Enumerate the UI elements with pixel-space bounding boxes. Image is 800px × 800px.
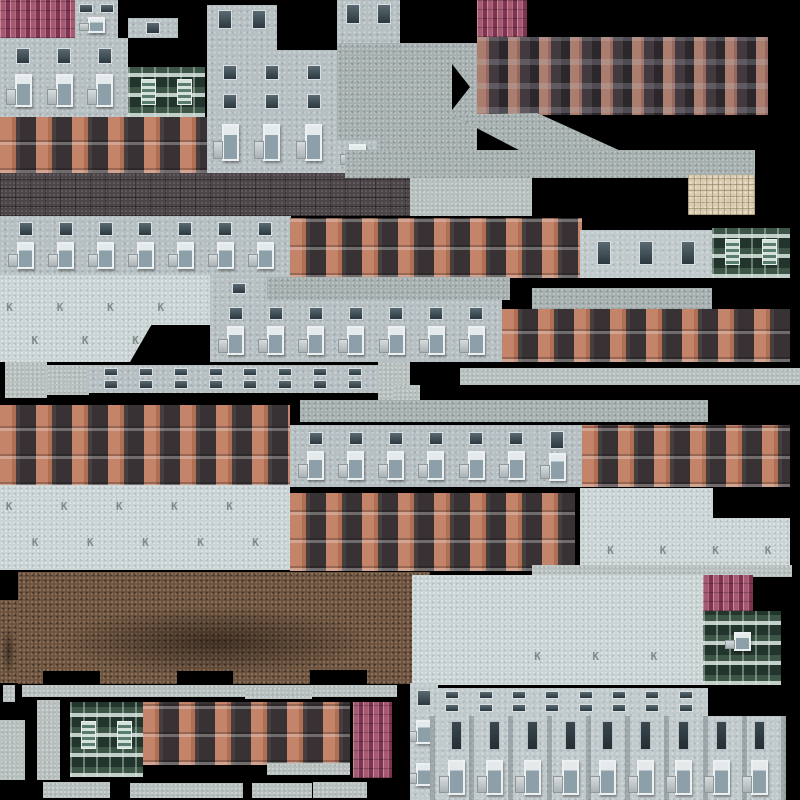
brick-row-b — [290, 218, 582, 278]
window — [637, 760, 654, 795]
window-row — [338, 4, 399, 24]
window — [218, 222, 232, 236]
window — [445, 691, 459, 699]
window — [599, 760, 616, 795]
window-row — [436, 691, 703, 699]
window — [469, 307, 483, 319]
window — [349, 432, 363, 444]
window — [174, 368, 188, 376]
window — [479, 704, 493, 712]
window — [489, 721, 500, 750]
k-watermark: K — [116, 500, 123, 513]
green-balcony — [703, 611, 781, 685]
window-row — [6, 242, 285, 269]
window — [307, 65, 321, 80]
window — [545, 691, 559, 699]
window — [348, 380, 362, 388]
ground-notch-b — [177, 671, 233, 684]
trim-strip-c — [245, 687, 312, 699]
roof-ridged-d — [353, 702, 392, 778]
window — [346, 4, 360, 24]
window — [252, 10, 266, 30]
facade-col-a — [75, 0, 118, 38]
window-row — [210, 124, 335, 161]
window — [267, 326, 284, 355]
window-row — [714, 239, 789, 265]
window-row — [94, 380, 372, 388]
window-row — [3, 74, 126, 107]
window-row — [210, 94, 335, 109]
concrete-pale-b: KKKKKKKKKK — [0, 485, 290, 570]
window — [309, 432, 323, 444]
window — [229, 307, 243, 319]
window — [209, 380, 223, 388]
window — [678, 721, 689, 750]
window — [104, 380, 118, 388]
window-row — [437, 760, 779, 795]
window — [512, 691, 526, 699]
window — [19, 222, 33, 236]
window — [645, 691, 659, 699]
window — [223, 94, 237, 109]
window — [389, 307, 403, 319]
window — [257, 242, 274, 269]
k-watermark: K — [82, 334, 89, 347]
window-row — [208, 10, 275, 30]
k-watermark: K — [132, 334, 139, 347]
window — [679, 704, 693, 712]
window — [88, 17, 105, 33]
window-row — [129, 22, 177, 33]
window — [307, 451, 324, 480]
window — [99, 222, 113, 236]
window — [81, 721, 96, 750]
window — [243, 368, 257, 376]
roof-slab-strip — [345, 150, 755, 178]
window — [232, 283, 246, 295]
window — [313, 380, 327, 388]
window-strip-b — [430, 688, 708, 716]
window-row — [583, 241, 710, 265]
k-watermark: K — [32, 334, 39, 347]
trim-bottom-c — [252, 783, 312, 798]
window — [645, 704, 659, 712]
brick-terrace-a — [477, 37, 768, 115]
green-facade-c — [70, 702, 143, 777]
ground-notch-c — [310, 670, 367, 684]
facade-col-b-top — [337, 0, 400, 43]
k-watermark: K — [660, 544, 667, 557]
window — [15, 74, 32, 107]
window — [681, 241, 695, 265]
roof-ridged-a — [0, 0, 76, 38]
concrete-pale-e: KKK — [412, 575, 703, 685]
window-row — [436, 704, 703, 712]
roof-strip-b — [532, 288, 712, 309]
window-row — [533, 431, 581, 448]
window — [347, 451, 364, 480]
facade-block-a — [0, 38, 128, 117]
window — [16, 48, 30, 64]
window — [389, 432, 403, 444]
window — [309, 307, 323, 319]
window — [139, 380, 153, 388]
window — [468, 326, 485, 355]
window — [138, 222, 152, 236]
window — [550, 431, 564, 448]
brick-wall-dark — [0, 173, 410, 216]
window-row — [437, 721, 779, 750]
window — [762, 239, 777, 265]
trim-block-a — [5, 362, 47, 398]
window-row — [71, 721, 141, 750]
window — [104, 368, 118, 376]
concrete-pale-c — [580, 488, 713, 518]
window — [100, 4, 114, 13]
window-row — [533, 453, 581, 481]
window — [468, 451, 485, 480]
window — [178, 222, 192, 236]
window — [524, 760, 541, 795]
window — [751, 760, 768, 795]
k-watermark: K — [171, 500, 178, 513]
window — [218, 10, 232, 30]
window — [305, 124, 322, 161]
window — [754, 721, 765, 750]
k-watermark: K — [6, 301, 13, 314]
trim-col-b — [37, 700, 60, 780]
window — [146, 22, 160, 33]
ground-bricks — [18, 572, 430, 684]
k-watermark: K — [57, 301, 64, 314]
window — [508, 451, 525, 480]
roof-ridged-c — [703, 575, 753, 611]
trim-strip-d — [267, 763, 350, 775]
trim-top-strip — [22, 685, 397, 697]
k-watermark: K — [32, 536, 39, 549]
window — [445, 704, 459, 712]
window — [549, 453, 566, 481]
window — [388, 326, 405, 355]
window — [451, 721, 462, 750]
brick-row-c — [502, 309, 790, 362]
k-watermark: K — [534, 650, 541, 663]
window — [565, 721, 576, 750]
window — [675, 760, 692, 795]
window — [278, 368, 292, 376]
window — [57, 242, 74, 269]
green-facade-a — [128, 67, 205, 117]
window — [479, 691, 493, 699]
window — [79, 4, 93, 13]
window — [141, 79, 156, 105]
k-watermark: K — [61, 500, 68, 513]
window — [448, 760, 465, 795]
window — [612, 691, 626, 699]
k-watermark: K — [107, 301, 114, 314]
window — [428, 326, 445, 355]
roof-strip-a — [267, 277, 510, 300]
k-watermark: K — [252, 536, 259, 549]
window — [427, 451, 444, 480]
window-row — [216, 307, 496, 319]
window — [347, 326, 364, 355]
ground-notch-a — [43, 671, 100, 684]
window — [348, 368, 362, 376]
window — [269, 307, 283, 319]
k-watermark: K — [158, 301, 165, 314]
window — [137, 242, 154, 269]
window — [57, 48, 71, 64]
window — [96, 74, 113, 107]
trim-bottom-a — [43, 782, 110, 798]
k-watermark: K — [87, 536, 94, 549]
window — [307, 94, 321, 109]
k-watermark: K — [712, 544, 719, 557]
window-strip-a — [88, 365, 378, 393]
k-watermark: K — [226, 500, 233, 513]
facade-small-a — [128, 18, 178, 38]
window — [313, 368, 327, 376]
window — [217, 242, 234, 269]
window — [177, 242, 194, 269]
window — [265, 65, 279, 80]
window — [139, 368, 153, 376]
trim-slab-a — [410, 178, 532, 216]
window — [716, 721, 727, 750]
window-row — [211, 283, 266, 295]
roof-strip-c — [300, 400, 708, 422]
facade-tower — [207, 50, 337, 173]
window-row — [76, 4, 117, 13]
window — [579, 691, 593, 699]
k-watermark: K — [607, 544, 614, 557]
facade-row-b — [210, 300, 502, 362]
window — [174, 380, 188, 388]
window-row — [6, 222, 285, 236]
window — [278, 380, 292, 388]
window — [265, 94, 279, 109]
k-watermark: K — [142, 536, 149, 549]
ground-bricks-edge — [0, 600, 18, 683]
window-row — [216, 326, 496, 355]
window — [429, 432, 443, 444]
k-watermark: K — [765, 544, 772, 557]
window — [417, 690, 431, 706]
window — [59, 222, 73, 236]
window — [97, 242, 114, 269]
window — [222, 124, 239, 161]
window-row — [76, 17, 117, 33]
window — [545, 704, 559, 712]
window — [639, 241, 653, 265]
brick-block-b — [290, 493, 575, 571]
brick-row-d — [582, 425, 790, 487]
window — [562, 760, 579, 795]
window — [377, 4, 391, 24]
window — [734, 632, 751, 651]
facade-row-a — [0, 216, 291, 278]
window — [56, 74, 73, 107]
window-row — [705, 632, 780, 651]
facade-big — [430, 716, 786, 800]
window — [469, 432, 483, 444]
window — [640, 721, 651, 750]
window — [243, 380, 257, 388]
window — [713, 760, 730, 795]
brick-block-a — [0, 405, 290, 487]
window — [117, 721, 132, 750]
k-watermark: K — [651, 650, 658, 663]
window-row — [210, 65, 335, 80]
trim-bottom-d — [313, 782, 367, 798]
window — [602, 721, 613, 750]
window — [17, 242, 34, 269]
window — [509, 432, 523, 444]
k-watermark: K — [592, 650, 599, 663]
window — [227, 326, 244, 355]
trim-block-b — [47, 365, 89, 395]
window — [579, 704, 593, 712]
window — [527, 721, 538, 750]
window — [597, 241, 611, 265]
window — [307, 326, 324, 355]
k-watermark: K — [6, 500, 13, 513]
trim-strip-a — [460, 368, 800, 385]
window — [725, 239, 740, 265]
texture-atlas-canvas: KKKKKKKKKKKKKKKKKKKKKKKKK — [0, 0, 800, 800]
window — [263, 124, 280, 161]
roof-ridged-b — [477, 0, 527, 37]
window — [258, 222, 272, 236]
k-watermark: K — [197, 536, 204, 549]
facade-row-b-upper — [210, 277, 267, 300]
window — [98, 48, 112, 64]
window — [177, 79, 192, 105]
window-row — [94, 368, 372, 376]
trim-col-a — [0, 720, 25, 780]
facade-3win — [580, 230, 712, 278]
trim-block-d — [3, 685, 15, 702]
window — [223, 65, 237, 80]
window-row — [130, 79, 204, 105]
window-row — [3, 48, 126, 64]
trim-bottom-b — [130, 783, 243, 798]
facade-tower-top — [207, 5, 277, 50]
stone-tiles — [688, 175, 755, 215]
facade-piece-a — [532, 425, 582, 487]
window — [679, 691, 693, 699]
window — [512, 704, 526, 712]
window — [387, 451, 404, 480]
window — [612, 704, 626, 712]
window — [429, 307, 443, 319]
brick-row-a — [0, 117, 207, 173]
window — [486, 760, 503, 795]
window — [209, 368, 223, 376]
window — [349, 307, 363, 319]
brick-row-e — [143, 702, 350, 765]
green-facade-b — [712, 228, 790, 278]
